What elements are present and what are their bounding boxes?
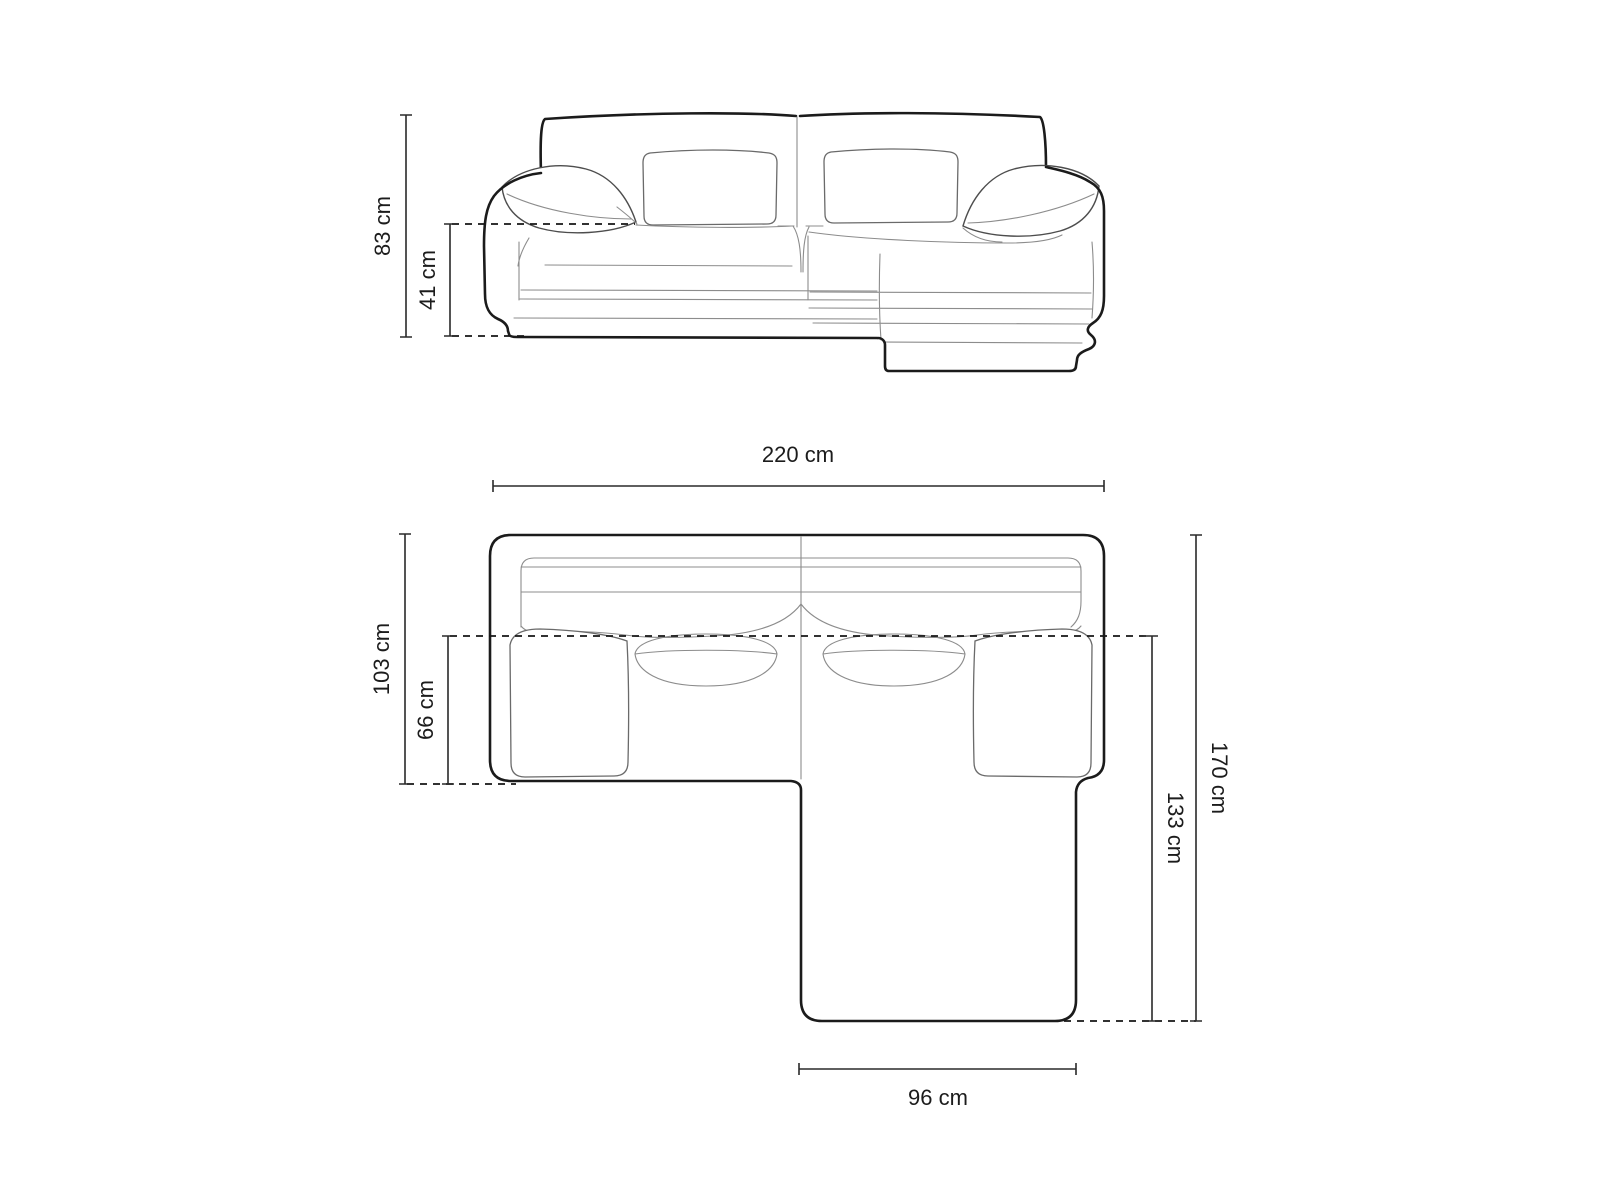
dim-chaise-width: 96 cm (799, 1063, 1076, 1110)
dim-body-depth-line (399, 534, 411, 784)
plan-seat-pouf-left (635, 634, 777, 686)
dim-label-body-depth: 103 cm (369, 623, 394, 695)
front-backrest-outline (541, 113, 1046, 173)
dim-total-depth-line (1190, 535, 1202, 1021)
top-view-drawing (490, 535, 1104, 1021)
sofa-dimension-diagram: 83 cm 41 cm 220 cm 103 cm 66 cm 17 (0, 0, 1600, 1200)
dim-total-width-line (493, 480, 1104, 492)
dim-total-width: 220 cm (493, 442, 1104, 492)
front-back-cushion-right (824, 149, 958, 223)
plan-outer-outline (490, 535, 1104, 1021)
dim-label-seat-height: 41 cm (415, 250, 440, 310)
dim-seat-height: 41 cm (415, 224, 456, 336)
dim-label-total-height: 83 cm (370, 196, 395, 256)
dim-seat-height-line (444, 224, 456, 336)
sofa-dimension-diagram-page: 83 cm 41 cm 220 cm 103 cm 66 cm 17 (0, 0, 1600, 1200)
front-view-drawing (484, 113, 1104, 371)
dim-chaise-depth-line (1146, 636, 1158, 1021)
front-backrest-seam (778, 117, 823, 227)
dim-label-chaise-width: 96 cm (908, 1085, 968, 1110)
dim-seat-depth: 66 cm (413, 636, 454, 784)
plan-seat-pouf-right (823, 634, 965, 686)
dim-total-height: 83 cm (370, 115, 412, 337)
dim-seat-depth-line (442, 636, 454, 784)
dim-label-seat-depth: 66 cm (413, 680, 438, 740)
dim-body-depth: 103 cm (369, 534, 411, 784)
dim-chaise-width-line (799, 1063, 1076, 1075)
front-back-cushion-left (643, 150, 777, 225)
front-arm-pillow-left (502, 166, 636, 233)
dim-chaise-depth: 133 cm (1146, 636, 1188, 1021)
dim-total-depth: 170 cm (1190, 535, 1232, 1021)
dim-total-height-line (400, 115, 412, 337)
plan-arm-pillow-left (510, 629, 629, 777)
dim-label-chaise-depth: 133 cm (1163, 792, 1188, 864)
dim-label-total-width: 220 cm (762, 442, 834, 467)
dim-label-total-depth: 170 cm (1207, 742, 1232, 814)
plan-arm-pillow-right (973, 629, 1092, 777)
